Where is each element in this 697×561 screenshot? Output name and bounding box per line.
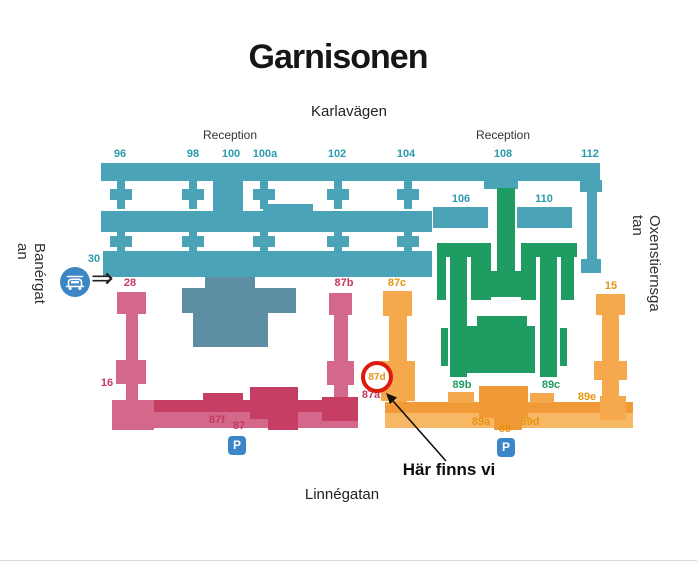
label-89e: 89e <box>578 391 596 403</box>
label-87f: 87f <box>209 414 225 426</box>
pink-right-block <box>322 397 358 421</box>
label-98: 98 <box>187 148 199 160</box>
green-side-bar <box>560 328 567 366</box>
slate-building-lower <box>193 313 268 347</box>
reception-right-label: Reception <box>476 128 530 142</box>
label-89: 89 <box>499 423 511 435</box>
parking-icon-east: P <box>497 438 515 457</box>
pink-center-bump <box>268 417 298 430</box>
teal-bar-110 <box>517 207 572 228</box>
pink-col87b-top <box>329 293 352 315</box>
green-column-89b <box>450 257 467 377</box>
street-oxenstiernsgatan-line2: tan <box>629 215 646 335</box>
green-column <box>437 257 446 300</box>
teal-connector <box>327 236 349 247</box>
orange-col87c-stem <box>389 316 407 361</box>
orange-col15-mid <box>594 361 627 380</box>
pink-center-block-87 <box>250 387 298 419</box>
label-87b: 87b <box>335 277 354 289</box>
label-87: 87 <box>233 420 245 432</box>
label-96: 96 <box>114 148 126 160</box>
map-title: Garnisonen <box>249 38 428 77</box>
garnisonen-map: Garnisonen Karlavägen Linnégatan Banérga… <box>0 0 697 561</box>
orange-bump-89d <box>530 393 554 403</box>
teal-connector <box>327 189 349 200</box>
street-oxenstiernsgatan: Oxenstiernsga tan <box>629 215 663 335</box>
label-87d: 87d <box>368 372 385 383</box>
orange-right-junction <box>600 396 626 420</box>
street-oxenstiernsgatan-line1: Oxenstiernsga <box>646 215 663 335</box>
green-column <box>521 257 536 300</box>
teal-connector <box>182 236 204 247</box>
teal-connector <box>182 189 204 200</box>
label-108: 108 <box>494 148 512 160</box>
label-89d: 89d <box>521 416 540 428</box>
teal-connector <box>253 236 275 247</box>
here-marker-circle: 87d <box>361 361 393 393</box>
pink-col28-mid <box>116 360 146 384</box>
teal-middle-bar <box>101 211 432 232</box>
orange-col15-stem <box>602 315 619 361</box>
label-100a: 100a <box>253 148 277 160</box>
label-28: 28 <box>124 277 136 289</box>
teal-block-100 <box>213 181 243 212</box>
label-100: 100 <box>222 148 240 160</box>
label-89a: 89a <box>472 416 490 428</box>
green-column <box>561 257 574 300</box>
slate-building-wide <box>182 288 296 313</box>
green-band-right <box>521 243 577 257</box>
orange-col15-top <box>596 294 625 315</box>
teal-connector <box>253 189 275 200</box>
teal-connector <box>110 189 132 200</box>
orange-bump-89a <box>448 392 474 403</box>
green-column <box>471 257 491 300</box>
orange-center-block-89 <box>479 386 528 418</box>
street-linnegatan: Linnégatan <box>305 486 379 503</box>
street-banergatan-line2: an <box>14 243 31 343</box>
teal-connector <box>110 236 132 247</box>
pink-bump-87f <box>203 393 243 405</box>
pink-col28-stem <box>126 314 138 360</box>
teal-ibeam-stem <box>587 191 597 261</box>
label-106: 106 <box>452 193 470 205</box>
pink-col87b-mid <box>327 361 354 385</box>
green-center-block <box>467 326 535 373</box>
orange-col87c-top <box>383 291 412 316</box>
label-112: 112 <box>581 148 599 160</box>
green-band-left <box>437 243 491 257</box>
teal-bottom-bar-30 <box>103 251 432 277</box>
double-arrow-icon: ⇒ <box>91 263 114 294</box>
parking-icon-west: P <box>228 436 246 455</box>
pink-col87b-stem <box>334 315 348 361</box>
street-banergatan: Banérgat an <box>14 243 48 343</box>
pink-end-block <box>112 400 154 430</box>
label-15: 15 <box>605 280 617 292</box>
label-110: 110 <box>535 193 553 205</box>
car-icon <box>60 267 90 297</box>
label-89c: 89c <box>542 379 560 391</box>
green-column-89c <box>540 257 557 377</box>
label-104: 104 <box>397 148 415 160</box>
teal-connector <box>397 236 419 247</box>
label-89b: 89b <box>453 379 472 391</box>
teal-ibeam-bottom <box>581 259 601 273</box>
pink-col28-top <box>117 292 146 314</box>
teal-top-bar <box>101 163 600 181</box>
teal-bar-106 <box>433 207 488 228</box>
teal-connector <box>397 189 419 200</box>
label-87c: 87c <box>388 277 406 289</box>
street-banergatan-line1: Banérgat <box>31 243 48 343</box>
green-side-bar <box>441 328 448 366</box>
street-karlavagen: Karlavägen <box>311 103 387 120</box>
teal-middle-bar-bump <box>263 204 313 212</box>
reception-left-label: Reception <box>203 128 257 142</box>
label-16: 16 <box>101 377 113 389</box>
here-annotation-text: Här finns vi <box>403 460 496 480</box>
label-102: 102 <box>328 148 346 160</box>
